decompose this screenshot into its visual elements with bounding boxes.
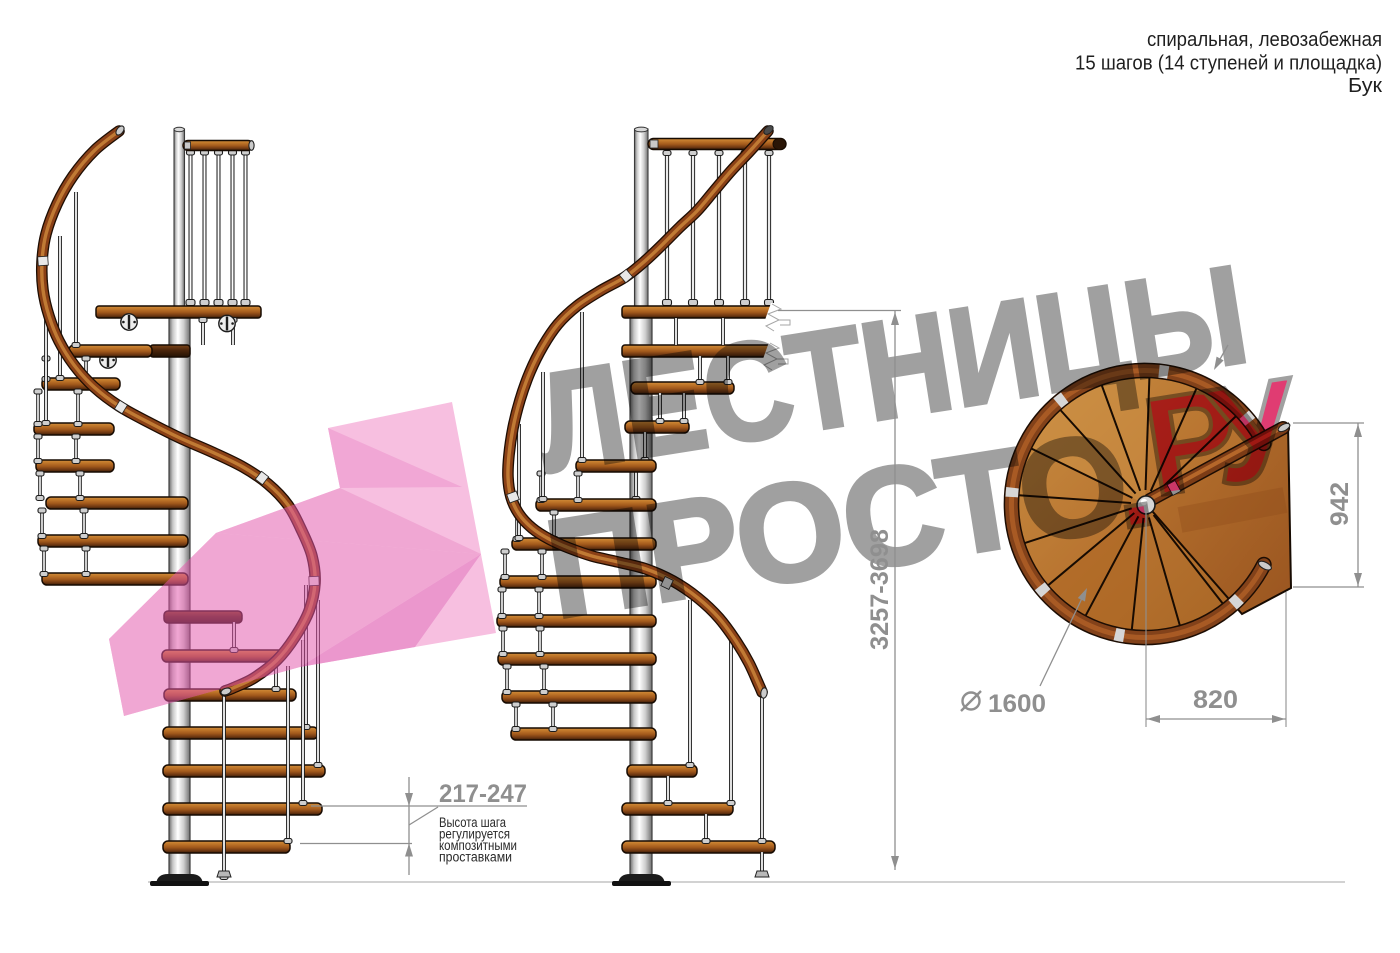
svg-text:проставками: проставками (439, 850, 512, 865)
svg-text:217-247: 217-247 (439, 780, 527, 808)
svg-text:3257-3698: 3257-3698 (866, 529, 894, 650)
svg-text:820: 820 (1193, 686, 1238, 714)
svg-text:942: 942 (1326, 482, 1354, 526)
svg-text:Бук: Бук (1348, 75, 1382, 97)
svg-text:15 шагов (14 ступеней и площад: 15 шагов (14 ступеней и площадка) (1075, 53, 1382, 75)
svg-text:спиральная, левозабежная: спиральная, левозабежная (1147, 29, 1382, 51)
svg-text:1600: 1600 (988, 690, 1046, 718)
